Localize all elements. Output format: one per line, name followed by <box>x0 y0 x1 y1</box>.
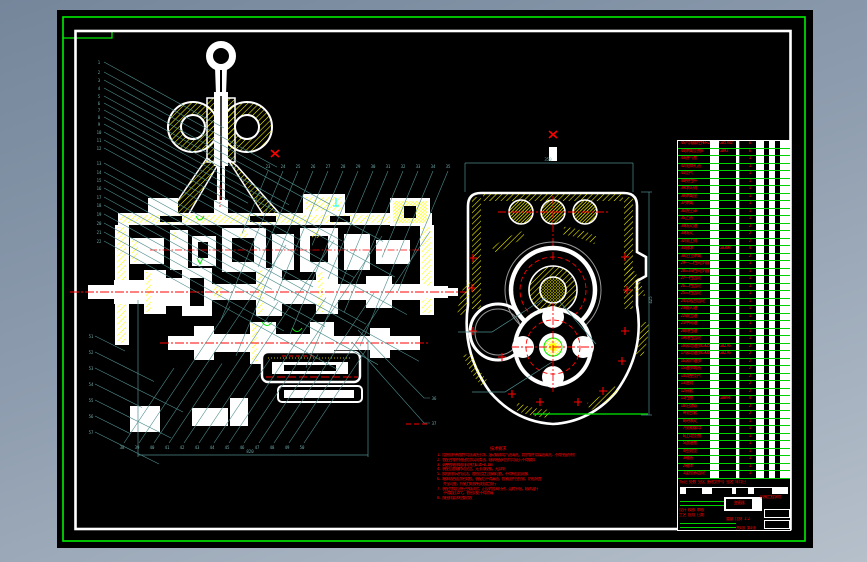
bom-cell-code <box>719 284 736 291</box>
bom-cell-w1 <box>756 186 764 193</box>
bom-cell-no: 31 <box>678 246 685 253</box>
bom-cell-no: 11 <box>678 396 685 403</box>
balloon-number: 50 <box>300 445 305 450</box>
bom-cell-wd <box>710 404 719 411</box>
bom-row: 5放油塞1 <box>678 441 790 449</box>
balloon-number: 37 <box>432 421 437 426</box>
bom-cell-w3 <box>780 186 790 193</box>
bom-cell-name: 挡圈 <box>685 396 711 403</box>
bom-cell-wd <box>710 344 719 351</box>
bom-cell-w3 <box>780 261 790 268</box>
balloon-number: 14 <box>97 170 102 175</box>
bom-cell-code <box>719 404 736 411</box>
bom-cell-no: 36 <box>678 209 685 216</box>
balloon-number: 54 <box>89 382 94 387</box>
titleblock-sheet: 共1张 第1张 <box>736 526 776 530</box>
bom-cell-name: 二档齿轮 <box>685 284 711 291</box>
balloon-number: 13 <box>97 161 102 166</box>
bom-cell-w1 <box>756 396 764 403</box>
bom-cell-name: 三四档同步器 <box>685 269 711 276</box>
bom-row: 34拨叉轴2 <box>678 224 790 232</box>
bom-cell-code: GB894 <box>719 396 736 403</box>
bom-cell-no: 8 <box>678 419 685 426</box>
bom-row: 32锁止销2 <box>678 239 790 247</box>
bom-row: 41垫片1 <box>678 171 790 179</box>
bom-cell-wd <box>710 149 719 156</box>
note-line: 8. 按图样要求检查验收 <box>437 496 589 501</box>
bom-cell-code <box>719 254 736 261</box>
bom-cell-w1 <box>756 464 764 471</box>
bom-cell-qty: 1 <box>744 321 756 328</box>
bom-cell-w3 <box>780 419 790 426</box>
bom-cell-name: 钢球 <box>685 246 711 253</box>
bom-cell-code <box>719 171 736 178</box>
bom-cell-qty: 2 <box>744 344 756 351</box>
bom-cell-w3 <box>780 254 790 261</box>
bom-cell-wd <box>710 464 719 471</box>
bom-row: 29一二档同步器1 <box>678 261 790 269</box>
bom-cell-qty: 1 <box>744 269 756 276</box>
bom-cell-w1 <box>756 164 764 171</box>
balloon-number: 44 <box>210 445 215 450</box>
bom-cell-no: 33 <box>678 231 685 238</box>
bom-cell-wd <box>710 299 719 306</box>
balloon-number: 12 <box>97 146 102 151</box>
bom-cell-w3 <box>780 141 790 148</box>
bom-cell-code <box>719 224 736 231</box>
bom-cell-qty: 1 <box>744 329 756 336</box>
bom-cell-name: 六角螺栓M8×25 <box>685 141 711 148</box>
bom-cell-name: 接合套 <box>685 411 711 418</box>
balloon-number: 26 <box>311 164 316 169</box>
titleblock-weight-scale: 重量 比例 1:2 <box>726 517 762 522</box>
bom-cell-no: 30 <box>678 254 685 261</box>
bom-cell-w1 <box>756 141 764 148</box>
bom-cell-wd <box>710 171 719 178</box>
balloon-number: 51 <box>89 334 94 339</box>
bom-row: 26二档齿轮1 <box>678 284 790 292</box>
bom-cell-name: 上盖 <box>685 216 711 223</box>
bom-cell-wd <box>710 336 719 343</box>
bom-cell-w3 <box>780 329 790 336</box>
bom-cell-code <box>719 464 736 471</box>
balloon-number: 23 <box>266 164 271 169</box>
balloon-number: 20 <box>97 221 102 226</box>
titleblock-sign-row2: 工艺 批准 日期 <box>679 513 733 518</box>
balloon-number: 27 <box>326 164 331 169</box>
bom-cell-no: 20 <box>678 329 685 336</box>
bom-cell-name: 中间轴 <box>685 321 711 328</box>
titleblock-school: 机械工程学院 <box>760 495 790 500</box>
bom-cell-name: 倒档轴 <box>685 329 711 336</box>
balloon-number: 30 <box>371 164 376 169</box>
bom-cell-qty: 1 <box>744 471 756 478</box>
bom-cell-code <box>719 471 736 478</box>
bom-cell-w3 <box>780 464 790 471</box>
bom-cell-wd <box>710 411 719 418</box>
bom-cell-qty: 1 <box>744 179 756 186</box>
bom-cell-wd <box>710 396 719 403</box>
bom-cell-w1 <box>756 194 764 201</box>
bom-row: 44弹簧垫圈8GB936 <box>678 149 790 157</box>
bom-row: 28三四档同步器1 <box>678 269 790 277</box>
bom-row: 40换挡杆1 <box>678 179 790 187</box>
bom-cell-w3 <box>780 366 790 373</box>
balloon-number: 41 <box>165 445 170 450</box>
bom-cell-name: 锁紧螺母 <box>685 426 711 433</box>
bom-cell-qty: 1 <box>744 291 756 298</box>
bom-cell-no: 7 <box>678 426 685 433</box>
bom-cell-w1 <box>756 254 764 261</box>
bom-cell-name: 定位弹簧 <box>685 254 711 261</box>
bom-cell-w1 <box>756 449 764 456</box>
bom-cell-w1 <box>756 224 764 231</box>
bom-row: 31钢球GB3084 <box>678 246 790 254</box>
bom-cell-w3 <box>780 231 790 238</box>
bom-cell-no: 25 <box>678 291 685 298</box>
bom-cell-w3 <box>780 449 790 456</box>
bom-cell-code: GB5782 <box>719 141 736 148</box>
bom-cell-no: 4 <box>678 449 685 456</box>
bom-row: 15轴承端盖2 <box>678 366 790 374</box>
balloon-number: 48 <box>270 445 275 450</box>
bom-cell-code <box>719 269 736 276</box>
bom-cell-no: 43 <box>678 156 685 163</box>
technical-notes: 技术要求 1. 组装前所有零件均须清洗干净，滚动轴承用汽油清洗，其余零件用煤油清… <box>437 447 589 501</box>
balloon-number: 35 <box>446 164 451 169</box>
balloon-number: 47 <box>255 445 260 450</box>
balloon-number: 36 <box>432 396 437 401</box>
dimension-text: 820 <box>246 449 254 454</box>
bom-cell-w3 <box>780 239 790 246</box>
bom-cell-no: 9 <box>678 411 685 418</box>
balloon-number: 49 <box>285 445 290 450</box>
bom-cell-wd <box>710 179 719 186</box>
bom-cell-w1 <box>756 419 764 426</box>
bom-cell-qty: 1 <box>744 276 756 283</box>
drawing-name: 变速器 <box>726 501 752 506</box>
bom-cell-wd <box>710 374 719 381</box>
bom-cell-w3 <box>780 321 790 328</box>
bom-cell-code <box>719 456 736 463</box>
bom-cell-code <box>719 419 736 426</box>
bom-row: 23输入轴1 <box>678 306 790 314</box>
bom-cell-qty: 1 <box>744 186 756 193</box>
bom-cell-qty: 1 <box>744 156 756 163</box>
bom-cell-code: GB308 <box>719 246 736 253</box>
bom-cell-w3 <box>780 216 790 223</box>
bom-cell-code <box>719 261 736 268</box>
bom-row: 6止动垫圈1 <box>678 434 790 442</box>
bom-cell-name: 三档齿轮 <box>685 291 711 298</box>
bom-cell-no: 16 <box>678 359 685 366</box>
bom-cell-code <box>719 449 736 456</box>
bom-cell-wd <box>710 449 719 456</box>
bom-cell-qty: 2 <box>744 411 756 418</box>
bom-cell-code <box>719 374 736 381</box>
bom-row: 30定位弹簧2 <box>678 254 790 262</box>
bom-cell-w1 <box>756 291 764 298</box>
bom-cell-wd <box>710 456 719 463</box>
bom-cell-no: 37 <box>678 201 685 208</box>
bom-cell-w1 <box>756 284 764 291</box>
bom-cell-code <box>719 366 736 373</box>
bom-table: 45六角螺栓M8×25GB5782644弹簧垫圈8GB93643通气塞142观察… <box>677 140 791 531</box>
bom-cell-w1 <box>756 209 764 216</box>
bom-cell-name: 轴承端盖 <box>685 366 711 373</box>
balloon-number: 39 <box>135 445 140 450</box>
bom-cell-code <box>719 179 736 186</box>
bom-row: 9接合套2 <box>678 411 790 419</box>
balloon-number: 25 <box>296 164 301 169</box>
bom-rows: 45六角螺栓M8×25GB5782644弹簧垫圈8GB93643通气塞142观察… <box>678 141 790 479</box>
bom-cell-w3 <box>780 441 790 448</box>
bom-cell-wd <box>710 426 719 433</box>
bom-cell-w1 <box>756 239 764 246</box>
bom-cell-wd <box>710 306 719 313</box>
bom-cell-wd <box>710 164 719 171</box>
bom-cell-qty: 2 <box>744 366 756 373</box>
bom-cell-qty: 2 <box>744 231 756 238</box>
bom-cell-wd <box>710 216 719 223</box>
bom-cell-w1 <box>756 471 764 478</box>
bom-row: 33拨叉2 <box>678 231 790 239</box>
balloon-number: 28 <box>341 164 346 169</box>
bom-cell-wd <box>710 321 719 328</box>
balloon-number: 42 <box>180 445 185 450</box>
balloon-number: 29 <box>356 164 361 169</box>
bom-cell-no: 1 <box>678 471 685 478</box>
bom-row: 39球头销1 <box>678 186 790 194</box>
bom-cell-no: 24 <box>678 299 685 306</box>
bom-row: 37弹簧1 <box>678 201 790 209</box>
bom-cell-w1 <box>756 299 764 306</box>
bom-cell-name: 弹簧 <box>685 201 711 208</box>
bom-cell-wd <box>710 419 719 426</box>
bom-cell-wd <box>710 239 719 246</box>
bom-cell-qty: 1 <box>744 261 756 268</box>
bom-cell-name: 输入轴 <box>685 306 711 313</box>
bom-cell-no: 28 <box>678 269 685 276</box>
bom-row: 27一档齿轮1 <box>678 276 790 284</box>
notes-lines: 1. 组装前所有零件均须清洗干净，滚动轴承用汽油清洗，其余零件用煤油清洗，不得残… <box>437 453 589 501</box>
bom-cell-w3 <box>780 351 790 358</box>
bom-cell-w1 <box>756 246 764 253</box>
bom-cell-code <box>719 381 736 388</box>
bom-row: 7锁紧螺母1 <box>678 426 790 434</box>
bom-cell-wd <box>710 434 719 441</box>
bom-cell-w1 <box>756 201 764 208</box>
bom-cell-code <box>719 434 736 441</box>
bom-cell-wd <box>710 231 719 238</box>
balloon-number: 33 <box>416 164 421 169</box>
bom-cell-w3 <box>780 269 790 276</box>
bom-cell-code <box>719 186 736 193</box>
bom-cell-qty: 2 <box>744 239 756 246</box>
bom-cell-wd <box>710 186 719 193</box>
balloon-number: 10 <box>97 130 102 135</box>
bom-cell-w3 <box>780 411 790 418</box>
bom-cell-no: 44 <box>678 149 685 156</box>
bom-cell-no: 41 <box>678 171 685 178</box>
bom-cell-no: 18 <box>678 344 685 351</box>
bom-cell-w1 <box>756 441 764 448</box>
bom-cell-w3 <box>780 471 790 478</box>
bom-cell-w3 <box>780 359 790 366</box>
bom-row: 35上盖1 <box>678 216 790 224</box>
bom-cell-code <box>719 336 736 343</box>
bom-row: 17滚动轴承6306GB2762 <box>678 351 790 359</box>
bom-cell-wd <box>710 224 719 231</box>
bom-cell-code: GB276 <box>719 344 736 351</box>
bom-cell-wd <box>710 246 719 253</box>
bom-cell-qty: 2 <box>744 224 756 231</box>
bom-cell-qty: 6 <box>744 149 756 156</box>
bom-cell-no: 5 <box>678 441 685 448</box>
bom-cell-w1 <box>756 231 764 238</box>
bom-cell-no: 26 <box>678 284 685 291</box>
bom-cell-name: 滚动轴承6306 <box>685 351 711 358</box>
bom-cell-qty: 2 <box>744 404 756 411</box>
bom-cell-w1 <box>756 321 764 328</box>
balloon-number: 15 <box>97 178 102 183</box>
bom-cell-w3 <box>780 396 790 403</box>
balloon-number: 38 <box>120 445 125 450</box>
bom-cell-wd <box>710 201 719 208</box>
bom-cell-w1 <box>756 411 764 418</box>
bom-cell-qty: 1 <box>744 171 756 178</box>
title-block: 标记 处数 分区 更改文件号 签名 年月日 设计 校核 审核 工艺 批准 日期 … <box>678 479 790 530</box>
bom-cell-w1 <box>756 366 764 373</box>
bom-cell-code <box>719 306 736 313</box>
bom-row: 4密封垫1 <box>678 449 790 457</box>
bom-cell-no: 35 <box>678 216 685 223</box>
bom-cell-no: 3 <box>678 456 685 463</box>
bom-cell-w3 <box>780 179 790 186</box>
bom-cell-code <box>719 441 736 448</box>
balloon-number: 46 <box>240 445 245 450</box>
bom-cell-no: 12 <box>678 389 685 396</box>
bom-cell-wd <box>710 441 719 448</box>
bom-cell-name: 止动垫圈 <box>685 434 711 441</box>
bom-cell-w1 <box>756 426 764 433</box>
bom-cell-w3 <box>780 389 790 396</box>
bom-cell-wd <box>710 366 719 373</box>
bom-cell-no: 42 <box>678 164 685 171</box>
bom-cell-wd <box>710 291 719 298</box>
bom-cell-w1 <box>756 261 764 268</box>
bom-cell-w3 <box>780 434 790 441</box>
bom-cell-no: 29 <box>678 261 685 268</box>
bom-cell-name: 输出轴 <box>685 314 711 321</box>
bom-cell-name: 锁止销 <box>685 239 711 246</box>
bom-cell-w1 <box>756 381 764 388</box>
bom-cell-w3 <box>780 194 790 201</box>
balloon-number: 17 <box>97 195 102 200</box>
bom-cell-name: 通气塞 <box>685 156 711 163</box>
bom-cell-no: 34 <box>678 224 685 231</box>
bom-cell-wd <box>710 194 719 201</box>
bom-cell-name: 里程表齿轮 <box>685 471 711 478</box>
bom-row: 8突缘叉1 <box>678 419 790 427</box>
bom-row: 1里程表齿轮1 <box>678 471 790 479</box>
bom-cell-w3 <box>780 404 790 411</box>
balloon-number: 45 <box>225 445 230 450</box>
titleblock-strip <box>680 487 788 494</box>
balloon-number: 55 <box>89 398 94 403</box>
bom-cell-w1 <box>756 269 764 276</box>
bom-cell-qty: 1 <box>744 441 756 448</box>
bom-cell-name: 拨叉 <box>685 231 711 238</box>
bom-cell-qty: 1 <box>744 419 756 426</box>
bom-row: 11挡圈GB8944 <box>678 396 790 404</box>
bom-cell-no: 21 <box>678 321 685 328</box>
bom-row: 14调整垫片2 <box>678 374 790 382</box>
bom-cell-name: 调整垫片 <box>685 374 711 381</box>
bom-row: 25三档齿轮1 <box>678 291 790 299</box>
bom-cell-qty: 1 <box>744 216 756 223</box>
bom-cell-qty: 1 <box>744 284 756 291</box>
bom-row: 2箱体1 <box>678 464 790 472</box>
bom-cell-w1 <box>756 179 764 186</box>
bom-cell-w3 <box>780 426 790 433</box>
bom-cell-no: 6 <box>678 434 685 441</box>
bom-cell-w3 <box>780 156 790 163</box>
bom-cell-no: 10 <box>678 404 685 411</box>
titleblock-rev-row: 标记 处数 分区 更改文件号 签名 年月日 <box>680 480 790 485</box>
bom-cell-wd <box>710 269 719 276</box>
bom-cell-qty: 1 <box>744 336 756 343</box>
bom-cell-name: 倒档齿轮 <box>685 336 711 343</box>
bom-row: 13油封2 <box>678 381 790 389</box>
bom-cell-w1 <box>756 314 764 321</box>
bom-cell-qty: 1 <box>744 306 756 313</box>
bom-cell-no: 17 <box>678 351 685 358</box>
bom-cell-name: 花键毂 <box>685 404 711 411</box>
bom-cell-name: 突缘叉 <box>685 419 711 426</box>
bom-cell-code: GB276 <box>719 351 736 358</box>
bom-cell-name: 箱体 <box>685 464 711 471</box>
bom-cell-w1 <box>756 156 764 163</box>
bom-cell-w3 <box>780 374 790 381</box>
bom-cell-qty: 1 <box>744 449 756 456</box>
bom-cell-name: 垫片 <box>685 171 711 178</box>
bom-cell-no: 13 <box>678 381 685 388</box>
bom-cell-name: 油封 <box>685 381 711 388</box>
balloon-number: 43 <box>195 445 200 450</box>
bom-cell-w3 <box>780 149 790 156</box>
bom-cell-wd <box>710 156 719 163</box>
bom-cell-code <box>719 291 736 298</box>
bom-cell-w1 <box>756 456 764 463</box>
bom-cell-code <box>719 201 736 208</box>
bom-cell-name: 常啮合齿轮 <box>685 299 711 306</box>
bom-cell-name: 箱盖 <box>685 456 711 463</box>
bom-cell-qty: 4 <box>744 246 756 253</box>
bom-cell-w3 <box>780 456 790 463</box>
bom-cell-w3 <box>780 336 790 343</box>
bom-cell-code <box>719 209 736 216</box>
bom-cell-w3 <box>780 171 790 178</box>
balloon-number: 31 <box>386 164 391 169</box>
bom-cell-qty: 1 <box>744 194 756 201</box>
bom-cell-name: 弹簧垫圈8 <box>685 149 711 156</box>
bom-row: 19倒档齿轮1 <box>678 336 790 344</box>
bom-cell-code: GB93 <box>719 149 736 156</box>
bom-cell-no: 40 <box>678 179 685 186</box>
bom-cell-w1 <box>756 351 764 358</box>
bom-row: 10花键毂2 <box>678 404 790 412</box>
